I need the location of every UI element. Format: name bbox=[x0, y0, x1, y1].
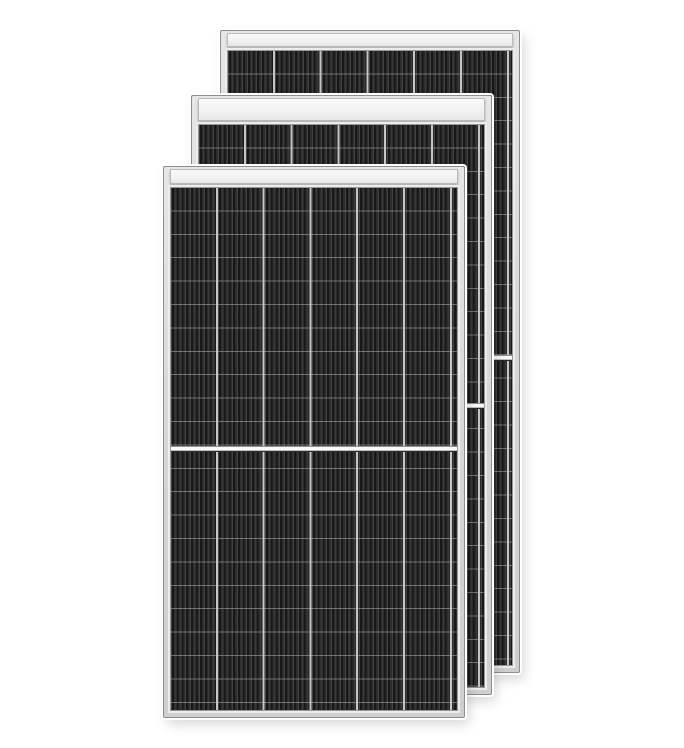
panel-top-frame-band bbox=[198, 98, 485, 121]
panel-top-frame-band bbox=[227, 33, 513, 47]
panel-top-frame-band bbox=[170, 169, 458, 184]
panel-cell-grid bbox=[170, 187, 458, 711]
panel-center-divider bbox=[171, 446, 457, 452]
solar-panel-stack bbox=[0, 0, 684, 748]
solar-panel-front bbox=[163, 166, 465, 718]
